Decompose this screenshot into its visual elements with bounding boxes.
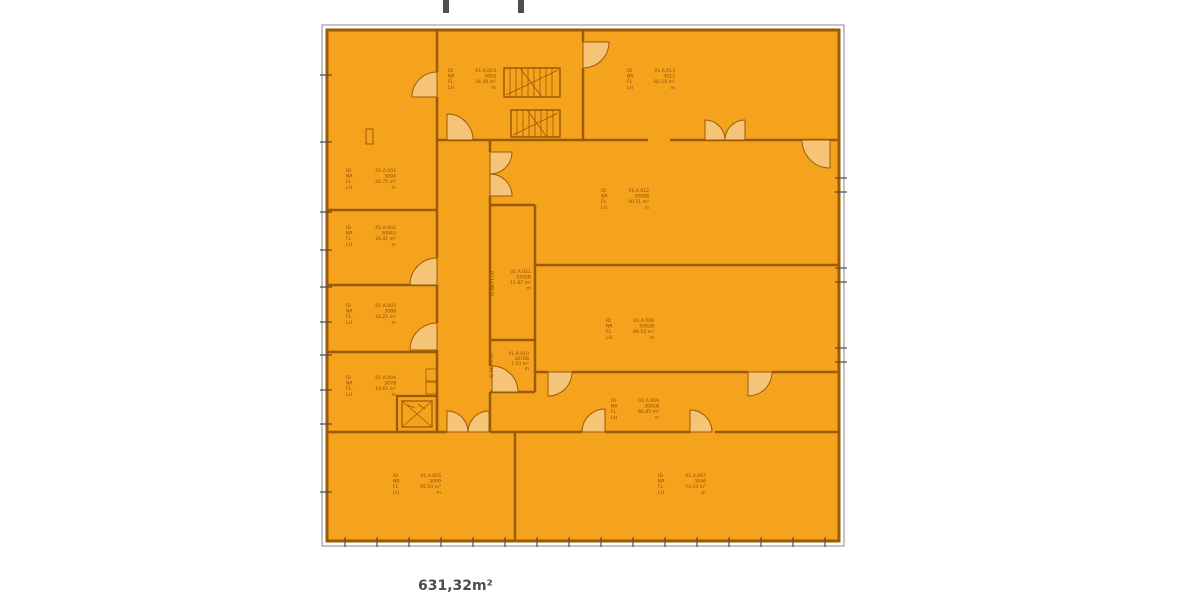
total-area-label: 631,32m² — [418, 578, 493, 594]
svg-text:ID NR FL LH: ID NR FL LH — [489, 353, 494, 378]
floor-plan-canvas: IDNRFLLH 01.A.001309442.75 m²m IDNRFLLH … — [0, 0, 1200, 600]
crop-mark-right — [518, 0, 524, 13]
svg-text:ID NR FL LH: ID NR FL LH — [490, 271, 495, 296]
crop-mark-left — [443, 0, 449, 13]
crop-marks — [443, 0, 524, 13]
